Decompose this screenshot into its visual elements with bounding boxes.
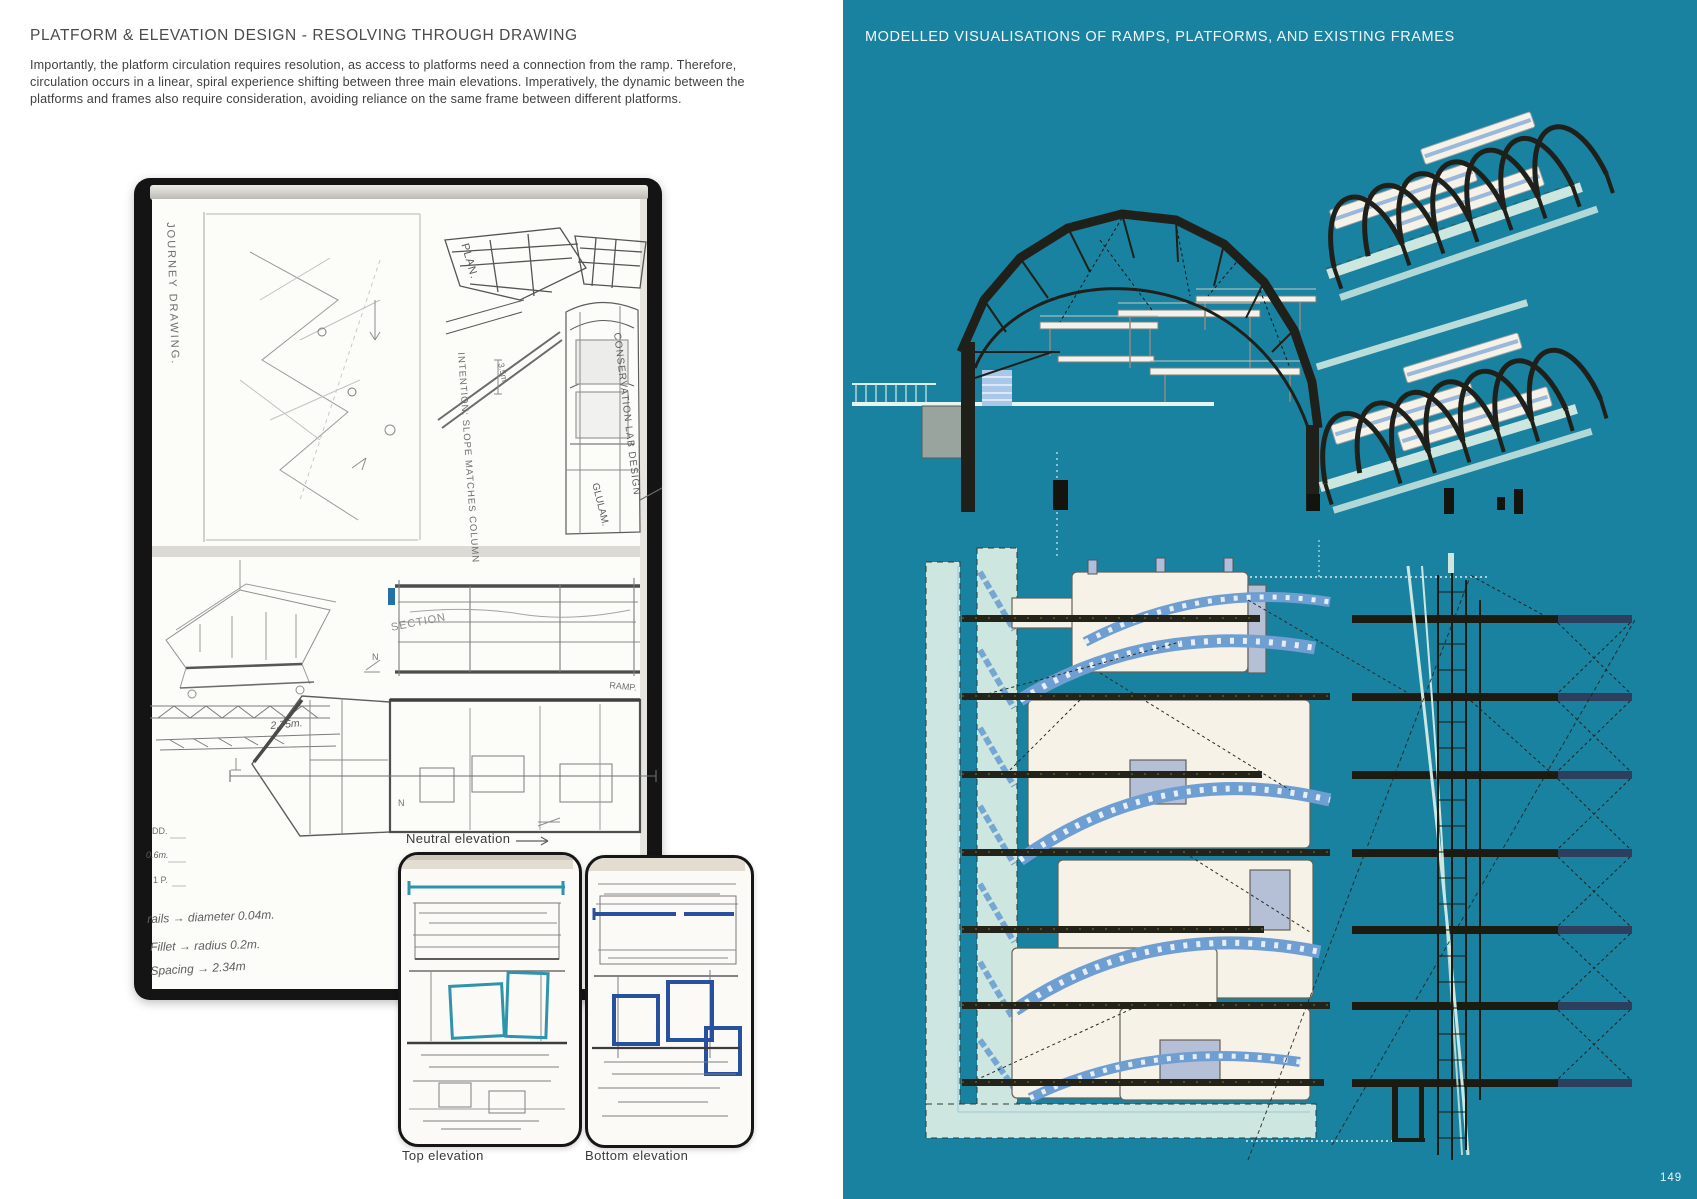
plan-figure (926, 480, 1523, 1138)
top-elevation-sketch (401, 855, 573, 1138)
annotation-dim-0-6m: 0.6m. (146, 850, 169, 860)
portfolio-spread: PLATFORM & ELEVATION DESIGN - RESOLVING … (0, 0, 1697, 1199)
annotation-north-2: N (398, 798, 405, 808)
bottom-elevation-sketch (588, 858, 745, 1139)
section-elevation-figure (852, 214, 1319, 560)
right-page-title: MODELLED VISUALISATIONS OF RAMPS, PLATFO… (865, 29, 1625, 45)
annotation-north-1: N (372, 652, 379, 662)
bottom-elevation-card (585, 855, 754, 1148)
isometric-figure-2 (1286, 290, 1609, 512)
label-neutral-elevation: Neutral elevation (406, 831, 510, 846)
label-top-elevation: Top elevation (402, 1148, 484, 1163)
page-number: 149 (1660, 1172, 1682, 1184)
note-fillet: Fillet → radius 0.2m. (150, 937, 260, 954)
annotation-dim-dd: DD. (152, 826, 168, 836)
top-elevation-card (398, 852, 582, 1147)
modelled-visualisations (843, 0, 1697, 1199)
annotation-dim-1p: 1 P. (153, 875, 168, 885)
isometric-figure-1 (1299, 95, 1616, 299)
label-bottom-elevation: Bottom elevation (585, 1148, 688, 1163)
